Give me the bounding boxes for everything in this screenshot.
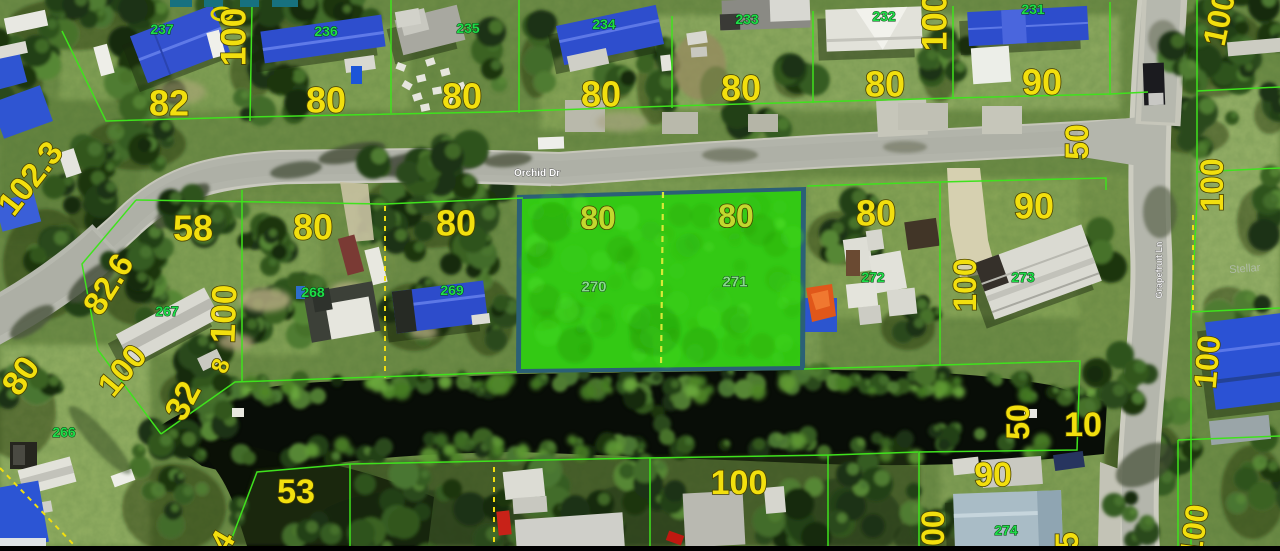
svg-text:80: 80 bbox=[436, 203, 476, 244]
svg-text:231: 231 bbox=[1021, 1, 1045, 17]
svg-text:80: 80 bbox=[718, 198, 754, 234]
svg-text:Orchid Dr: Orchid Dr bbox=[514, 168, 560, 179]
svg-text:100: 100 bbox=[1194, 158, 1230, 211]
svg-text:267: 267 bbox=[155, 303, 179, 319]
svg-text:82: 82 bbox=[149, 83, 189, 124]
svg-text:270: 270 bbox=[581, 279, 606, 296]
svg-text:100: 100 bbox=[947, 258, 983, 311]
svg-text:232: 232 bbox=[872, 8, 896, 24]
svg-text:273: 273 bbox=[1011, 269, 1035, 285]
svg-text:237: 237 bbox=[150, 21, 174, 37]
svg-text:233: 233 bbox=[735, 11, 759, 27]
svg-text:80: 80 bbox=[856, 193, 896, 234]
svg-text:5: 5 bbox=[1049, 532, 1085, 546]
svg-text:Stellar: Stellar bbox=[1229, 262, 1261, 276]
svg-text:100: 100 bbox=[1187, 334, 1228, 390]
svg-text:268: 268 bbox=[301, 284, 325, 300]
svg-text:274: 274 bbox=[994, 522, 1018, 538]
svg-text:235: 235 bbox=[456, 20, 480, 36]
svg-text:100: 100 bbox=[711, 464, 768, 502]
svg-text:50: 50 bbox=[1059, 124, 1095, 160]
svg-text:100: 100 bbox=[916, 0, 955, 51]
svg-text:100: 100 bbox=[1172, 502, 1215, 546]
svg-text:272: 272 bbox=[861, 269, 885, 285]
svg-text:100: 100 bbox=[215, 8, 254, 66]
svg-text:53: 53 bbox=[277, 473, 315, 511]
svg-text:10: 10 bbox=[1064, 406, 1102, 444]
svg-text:269: 269 bbox=[440, 282, 464, 298]
svg-text:80: 80 bbox=[580, 200, 616, 236]
svg-text:100: 100 bbox=[203, 284, 244, 344]
svg-text:90: 90 bbox=[1014, 186, 1054, 227]
svg-text:Grapefruit Ln: Grapefruit Ln bbox=[1154, 241, 1164, 298]
svg-text:271: 271 bbox=[722, 274, 747, 291]
svg-text:80: 80 bbox=[293, 207, 333, 248]
svg-text:80: 80 bbox=[442, 76, 482, 117]
svg-text:58: 58 bbox=[173, 208, 213, 249]
svg-text:80: 80 bbox=[721, 68, 761, 109]
svg-text:50: 50 bbox=[1000, 404, 1036, 440]
svg-text:90: 90 bbox=[1022, 62, 1062, 103]
svg-text:80: 80 bbox=[306, 80, 346, 121]
svg-text:100: 100 bbox=[915, 510, 951, 546]
svg-text:234: 234 bbox=[592, 16, 616, 32]
svg-text:80: 80 bbox=[865, 64, 905, 105]
svg-text:90: 90 bbox=[974, 456, 1012, 494]
svg-text:80: 80 bbox=[581, 74, 621, 115]
svg-text:266: 266 bbox=[52, 424, 76, 440]
svg-text:236: 236 bbox=[314, 23, 338, 39]
